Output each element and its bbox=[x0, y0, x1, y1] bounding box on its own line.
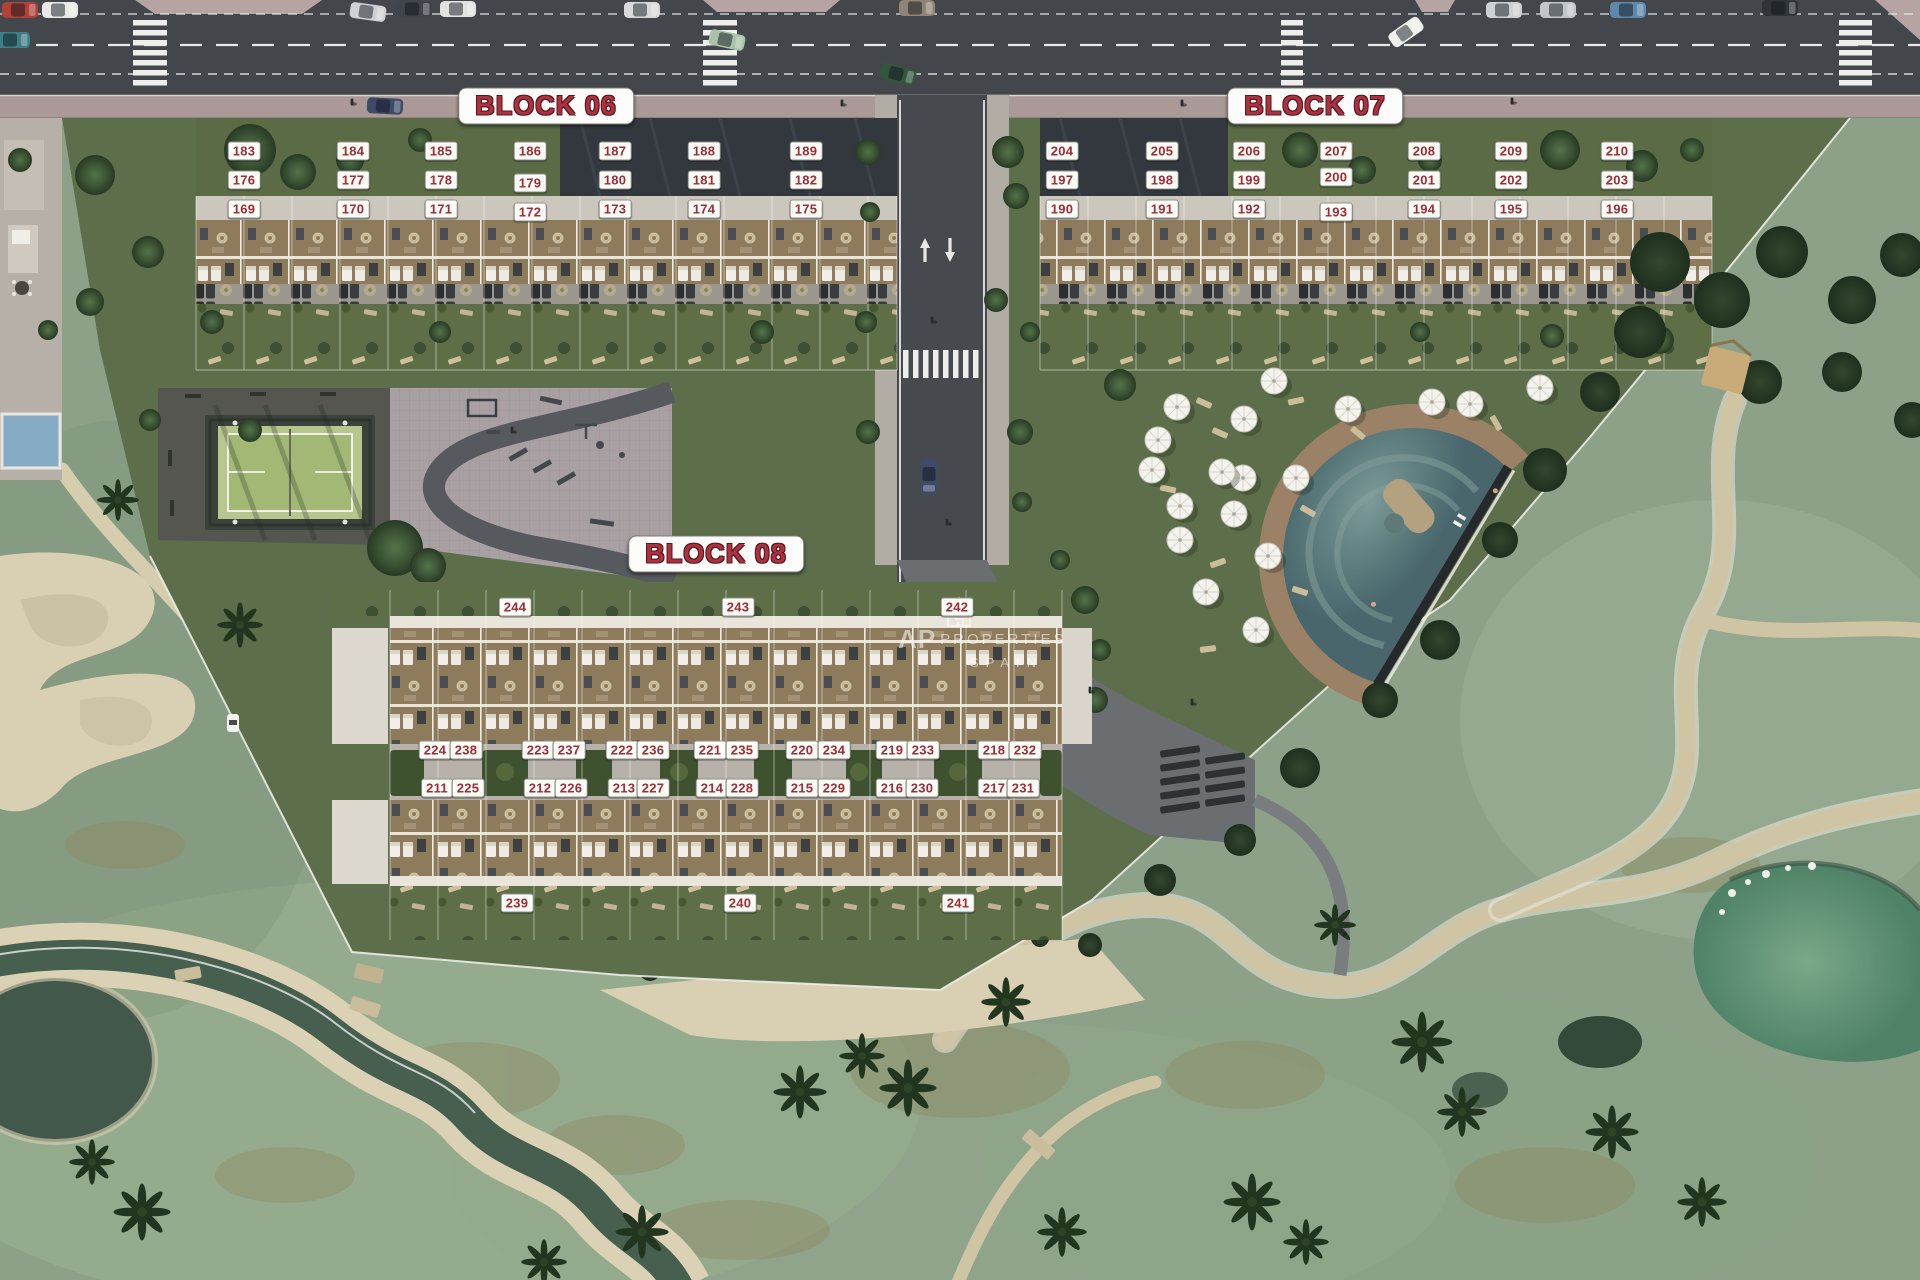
unit-badge-242: 242 bbox=[941, 598, 974, 617]
unit-badge-236: 236 bbox=[637, 741, 670, 760]
unit-badge-190: 190 bbox=[1046, 200, 1079, 219]
block-title-block-06: BLOCK 06 bbox=[458, 88, 634, 125]
unit-badge-243: 243 bbox=[722, 598, 755, 617]
unit-badge-227: 227 bbox=[637, 779, 670, 798]
unit-badge-233: 233 bbox=[907, 741, 940, 760]
unit-badge-178: 178 bbox=[425, 171, 458, 190]
unit-badge-226: 226 bbox=[555, 779, 588, 798]
unit-badge-177: 177 bbox=[337, 171, 370, 190]
unit-badge-241: 241 bbox=[942, 894, 975, 913]
site-plan: 1831841851861871881891761771781791801811… bbox=[0, 0, 1920, 1280]
unit-badge-181: 181 bbox=[688, 171, 721, 190]
unit-badge-204: 204 bbox=[1046, 142, 1079, 161]
unit-badge-203: 203 bbox=[1601, 171, 1634, 190]
unit-badge-201: 201 bbox=[1408, 171, 1441, 190]
unit-badge-215: 215 bbox=[786, 779, 819, 798]
unit-badge-231: 231 bbox=[1007, 779, 1040, 798]
unit-badge-169: 169 bbox=[228, 200, 261, 219]
unit-badge-173: 173 bbox=[599, 200, 632, 219]
unit-badge-172: 172 bbox=[514, 203, 547, 222]
unit-badge-218: 218 bbox=[978, 741, 1011, 760]
watermark: APPROPERTIES SPAIN bbox=[898, 626, 1067, 669]
unit-badge-219: 219 bbox=[876, 741, 909, 760]
unit-badge-244: 244 bbox=[499, 598, 532, 617]
unit-badge-183: 183 bbox=[228, 142, 261, 161]
unit-badge-208: 208 bbox=[1408, 142, 1441, 161]
unit-badge-174: 174 bbox=[688, 200, 721, 219]
unit-badge-188: 188 bbox=[688, 142, 721, 161]
unit-badge-214: 214 bbox=[696, 779, 729, 798]
unit-badge-217: 217 bbox=[978, 779, 1011, 798]
unit-badge-184: 184 bbox=[337, 142, 370, 161]
watermark-spain: SPAIN bbox=[970, 656, 1067, 669]
unit-badge-225: 225 bbox=[452, 779, 485, 798]
unit-badge-223: 223 bbox=[522, 741, 555, 760]
unit-badge-179: 179 bbox=[514, 174, 547, 193]
unit-badge-196: 196 bbox=[1601, 200, 1634, 219]
unit-badge-209: 209 bbox=[1495, 142, 1528, 161]
unit-badge-176: 176 bbox=[228, 171, 261, 190]
unit-badge-197: 197 bbox=[1046, 171, 1079, 190]
unit-badge-205: 205 bbox=[1146, 142, 1179, 161]
unit-badge-232: 232 bbox=[1009, 741, 1042, 760]
unit-badge-191: 191 bbox=[1146, 200, 1179, 219]
watermark-ap: AP bbox=[898, 624, 936, 654]
unit-badge-228: 228 bbox=[726, 779, 759, 798]
unit-badge-211: 211 bbox=[421, 779, 453, 798]
unit-badge-224: 224 bbox=[419, 741, 452, 760]
unit-badge-212: 212 bbox=[524, 779, 557, 798]
unit-badge-195: 195 bbox=[1495, 200, 1528, 219]
unit-badge-171: 171 bbox=[425, 200, 458, 219]
unit-badge-234: 234 bbox=[818, 741, 851, 760]
unit-badge-216: 216 bbox=[876, 779, 909, 798]
unit-badge-200: 200 bbox=[1320, 168, 1353, 187]
unit-badge-175: 175 bbox=[790, 200, 823, 219]
unit-badge-210: 210 bbox=[1601, 142, 1634, 161]
unit-badge-213: 213 bbox=[608, 779, 641, 798]
unit-badge-202: 202 bbox=[1495, 171, 1528, 190]
watermark-properties: PROPERTIES bbox=[940, 631, 1066, 648]
unit-badge-187: 187 bbox=[599, 142, 632, 161]
unit-badge-198: 198 bbox=[1146, 171, 1179, 190]
unit-badge-206: 206 bbox=[1233, 142, 1266, 161]
unit-badge-193: 193 bbox=[1320, 203, 1353, 222]
unit-badge-185: 185 bbox=[425, 142, 458, 161]
unit-badge-235: 235 bbox=[726, 741, 759, 760]
unit-badge-239: 239 bbox=[501, 894, 534, 913]
unit-badge-192: 192 bbox=[1233, 200, 1266, 219]
unit-badge-230: 230 bbox=[906, 779, 939, 798]
block-title-block-07: BLOCK 07 bbox=[1227, 88, 1403, 125]
unit-badge-180: 180 bbox=[599, 171, 632, 190]
unit-badge-199: 199 bbox=[1233, 171, 1266, 190]
unit-badge-207: 207 bbox=[1320, 142, 1353, 161]
unit-badge-220: 220 bbox=[786, 741, 819, 760]
unit-badge-229: 229 bbox=[818, 779, 851, 798]
unit-badge-186: 186 bbox=[514, 142, 547, 161]
unit-badge-170: 170 bbox=[337, 200, 370, 219]
unit-badge-222: 222 bbox=[606, 741, 639, 760]
unit-badge-221: 221 bbox=[694, 741, 727, 760]
unit-badge-238: 238 bbox=[450, 741, 483, 760]
unit-badge-194: 194 bbox=[1408, 200, 1441, 219]
unit-badge-237: 237 bbox=[553, 741, 586, 760]
unit-badge-240: 240 bbox=[724, 894, 757, 913]
block-title-block-08: BLOCK 08 bbox=[628, 536, 804, 573]
unit-badge-182: 182 bbox=[790, 171, 823, 190]
unit-badge-189: 189 bbox=[790, 142, 823, 161]
